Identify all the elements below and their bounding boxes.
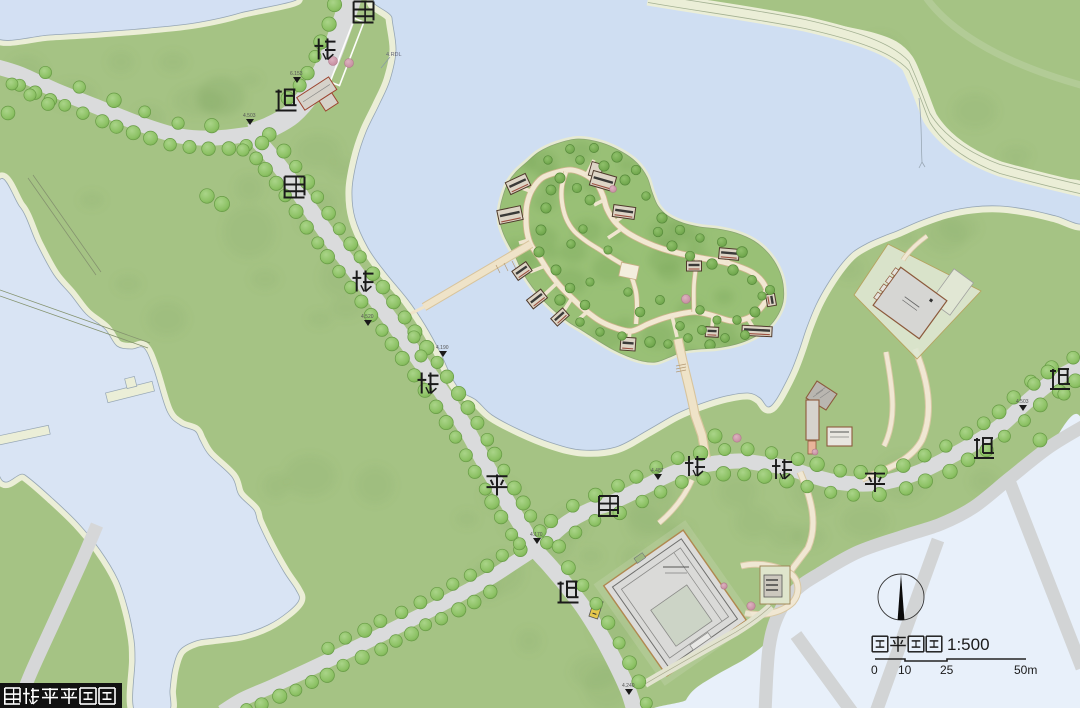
svg-text:4.170: 4.170 (530, 532, 543, 538)
svg-text:25: 25 (940, 663, 954, 677)
svg-text:10: 10 (898, 663, 912, 677)
svg-text:4.503: 4.503 (243, 113, 256, 119)
svg-text:6.153: 6.153 (290, 71, 303, 77)
svg-text:4.240: 4.240 (622, 683, 635, 689)
svg-text:1:500: 1:500 (947, 635, 990, 654)
svg-text:4.503: 4.503 (1016, 399, 1029, 405)
svg-text:0: 0 (871, 663, 878, 677)
svg-text:4.487: 4.487 (651, 468, 664, 474)
svg-text:4.RDL: 4.RDL (386, 52, 402, 58)
svg-text:4.190: 4.190 (436, 345, 449, 351)
svg-text:50m: 50m (1014, 663, 1037, 677)
svg-text:4.520: 4.520 (361, 314, 374, 320)
